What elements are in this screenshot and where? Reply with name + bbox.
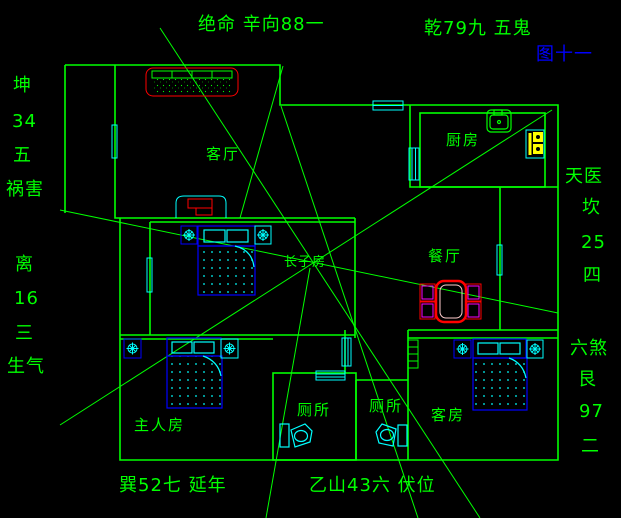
door-hatch-icon xyxy=(408,340,418,368)
bed-icon xyxy=(167,338,222,408)
room-label-living: 客厅 xyxy=(206,147,240,162)
annotation-right-upper-trigram: 坎 xyxy=(582,199,601,217)
annotation-right-lower-number: 97 xyxy=(579,403,604,421)
room-label-toilet-2: 厕所 xyxy=(369,399,403,414)
annotation-right-upper-star: 四 xyxy=(583,267,602,285)
annotation-top-right: 乾79九 五鬼 xyxy=(424,20,532,38)
nightstand-icon xyxy=(527,340,543,358)
room-label-toilet-1: 厕所 xyxy=(297,403,331,418)
annotation-left-lower-number: 16 xyxy=(14,290,39,308)
toilet-icon xyxy=(280,424,312,447)
room-label-dining: 餐厅 xyxy=(428,249,462,264)
room-label-kitchen: 厨房 xyxy=(446,133,480,148)
window-icon xyxy=(373,101,403,110)
annotation-bottom-right: 乙山43六 伏位 xyxy=(309,477,436,495)
annotation-right-lower-star: 二 xyxy=(581,438,600,456)
room-label-eldest-son: 长子房 xyxy=(284,256,326,269)
nightstand-icon xyxy=(255,226,271,244)
room-label-guest: 客房 xyxy=(431,408,465,423)
annotation-right-lower-trigram: 艮 xyxy=(578,371,597,389)
cad-floorplan-viewport[interactable]: 绝命 辛向88一 乾79九 五鬼 图十一 坤 34 五 祸害 离 16 三 生气… xyxy=(0,0,621,518)
window-icon xyxy=(342,338,351,366)
annotation-left-upper-number: 34 xyxy=(12,113,37,131)
annotation-right-upper-portent: 天医 xyxy=(565,168,603,186)
toilet-icon xyxy=(376,424,407,446)
annotation-left-upper-portent: 祸害 xyxy=(6,181,44,199)
armchair-icon xyxy=(176,196,226,218)
annotation-left-lower-star: 三 xyxy=(15,325,34,343)
nightstand-icon xyxy=(221,339,238,358)
nightstand-icon xyxy=(124,339,141,358)
nightstand-icon xyxy=(454,340,471,358)
dining-chair-icon xyxy=(420,284,481,319)
dining-table-icon xyxy=(436,281,466,322)
room-label-master: 主人房 xyxy=(134,418,185,433)
annotation-right-upper-number: 25 xyxy=(581,234,606,252)
annotation-left-lower-trigram: 离 xyxy=(15,256,34,274)
annotation-right-lower-portent: 六煞 xyxy=(570,340,608,358)
bed-icon xyxy=(473,339,527,410)
annotation-left-upper-star: 五 xyxy=(13,147,32,165)
sofa-icon xyxy=(146,68,238,96)
bed-icon xyxy=(198,226,255,295)
annotation-top-left: 绝命 辛向88一 xyxy=(198,16,325,34)
annotation-bottom-left: 巽52七 延年 xyxy=(119,477,227,495)
figure-number-label: 图十一 xyxy=(536,46,593,64)
fengshui-rays xyxy=(60,28,558,518)
annotation-left-lower-portent: 生气 xyxy=(7,358,45,376)
nightstand-icon xyxy=(181,226,197,244)
annotation-left-upper-trigram: 坤 xyxy=(13,77,32,95)
stove-icon xyxy=(526,130,544,158)
